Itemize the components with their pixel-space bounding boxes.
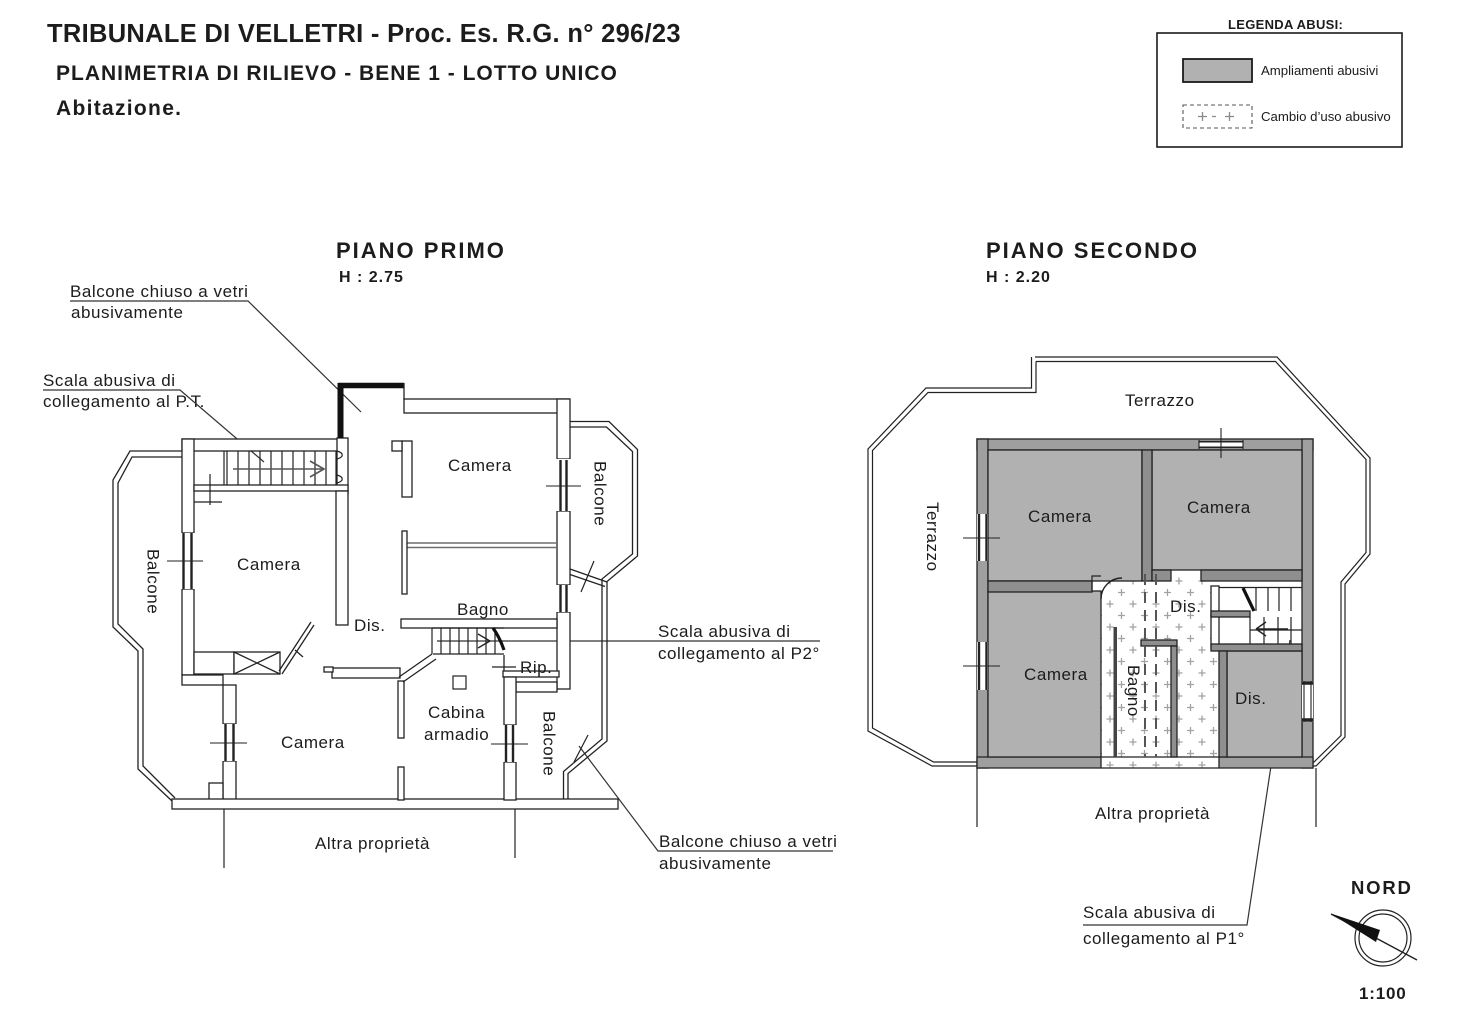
svg-text:Dis.: Dis. bbox=[354, 616, 385, 635]
svg-text:1:100: 1:100 bbox=[1359, 984, 1406, 1003]
svg-text:Bagno: Bagno bbox=[457, 600, 509, 619]
svg-text:abusivamente: abusivamente bbox=[659, 854, 771, 873]
svg-text:collegamento al P.T.: collegamento al P.T. bbox=[43, 392, 205, 411]
svg-text:H : 2.20: H : 2.20 bbox=[986, 269, 1051, 286]
svg-text:Balcone: Balcone bbox=[540, 711, 559, 776]
svg-text:collegamento al P2°: collegamento al P2° bbox=[658, 644, 820, 663]
svg-text:Altra proprietà: Altra proprietà bbox=[1095, 804, 1210, 823]
svg-text:PLANIMETRIA DI RILIEVO - BENE: PLANIMETRIA DI RILIEVO - BENE 1 - LOTTO … bbox=[56, 62, 618, 85]
svg-text:Bagno: Bagno bbox=[1124, 665, 1143, 717]
svg-text:Scala abusiva di: Scala abusiva di bbox=[43, 371, 176, 390]
svg-text:Terrazzo: Terrazzo bbox=[1125, 391, 1195, 410]
svg-text:PIANO PRIMO: PIANO PRIMO bbox=[336, 238, 506, 263]
svg-text:Camera: Camera bbox=[237, 555, 301, 574]
svg-text:Camera: Camera bbox=[1024, 665, 1088, 684]
svg-text:Scala abusiva di: Scala abusiva di bbox=[658, 622, 791, 641]
svg-text:Dis.: Dis. bbox=[1235, 689, 1266, 708]
svg-text:Balcone: Balcone bbox=[591, 461, 610, 526]
svg-text:abusivamente: abusivamente bbox=[71, 303, 183, 322]
svg-text:Rip.: Rip. bbox=[520, 658, 552, 677]
svg-text:Cabina: Cabina bbox=[428, 703, 485, 722]
svg-text:Balcone chiuso a vetri: Balcone chiuso a vetri bbox=[70, 282, 248, 301]
svg-text:Abitazione.: Abitazione. bbox=[56, 97, 182, 120]
svg-text:Scala abusiva di: Scala abusiva di bbox=[1083, 903, 1216, 922]
svg-text:Camera: Camera bbox=[448, 456, 512, 475]
svg-text:Altra proprietà: Altra proprietà bbox=[315, 834, 430, 853]
svg-text:NORD: NORD bbox=[1351, 877, 1413, 898]
svg-text:Camera: Camera bbox=[1187, 498, 1251, 517]
svg-text:Cambio d’uso abusivo: Cambio d’uso abusivo bbox=[1261, 109, 1391, 124]
svg-text:armadio: armadio bbox=[424, 725, 489, 744]
svg-text:Ampliamenti abusivi: Ampliamenti abusivi bbox=[1261, 63, 1378, 78]
svg-text:LEGENDA ABUSI:: LEGENDA ABUSI: bbox=[1228, 17, 1343, 32]
svg-text:collegamento al P1°: collegamento al P1° bbox=[1083, 929, 1245, 948]
svg-text:Balcone: Balcone bbox=[144, 549, 163, 614]
svg-text:PIANO SECONDO: PIANO SECONDO bbox=[986, 238, 1199, 263]
svg-text:TRIBUNALE DI VELLETRI - Proc.: TRIBUNALE DI VELLETRI - Proc. Es. R.G. n… bbox=[47, 20, 681, 48]
svg-text:H : 2.75: H : 2.75 bbox=[339, 269, 404, 286]
svg-text:Camera: Camera bbox=[281, 733, 345, 752]
svg-text:Dis.: Dis. bbox=[1170, 597, 1201, 616]
svg-text:Balcone chiuso a vetri: Balcone chiuso a vetri bbox=[659, 832, 837, 851]
svg-text:Terrazzo: Terrazzo bbox=[923, 502, 942, 572]
svg-text:Camera: Camera bbox=[1028, 507, 1092, 526]
